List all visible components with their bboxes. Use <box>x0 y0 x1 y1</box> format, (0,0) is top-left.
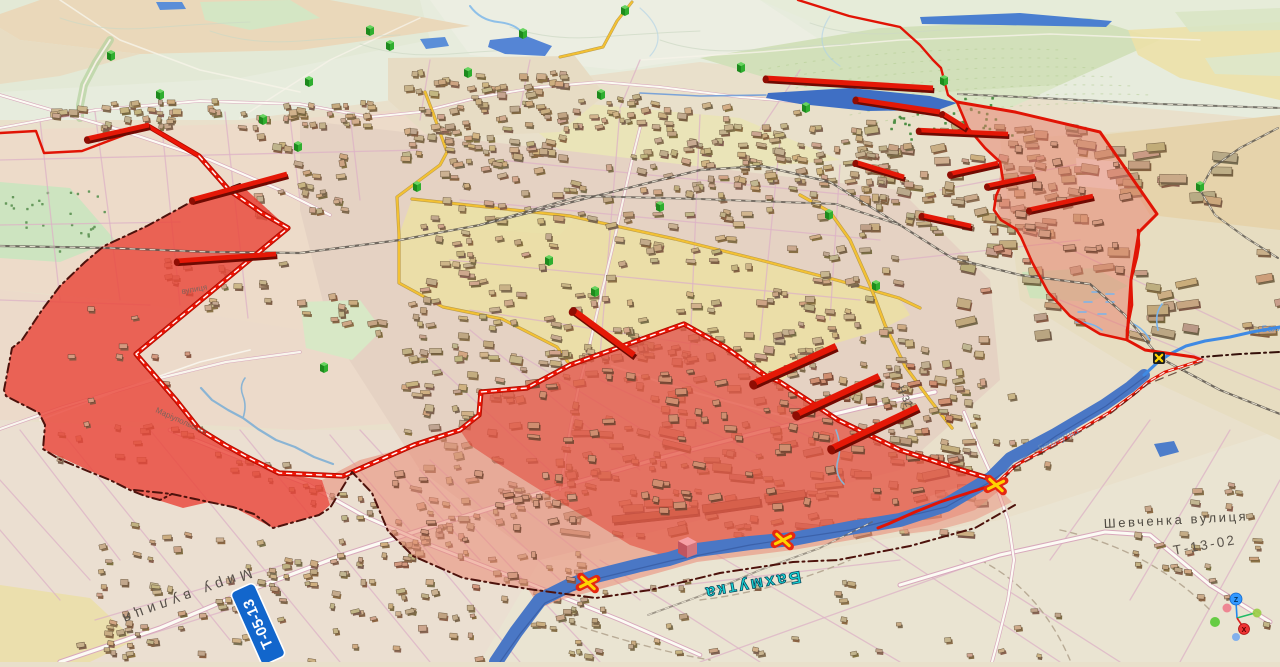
svg-text:Бахм: Бахм <box>1261 323 1280 334</box>
svg-text:Z: Z <box>1234 597 1239 604</box>
svg-text:X: X <box>1242 627 1247 634</box>
